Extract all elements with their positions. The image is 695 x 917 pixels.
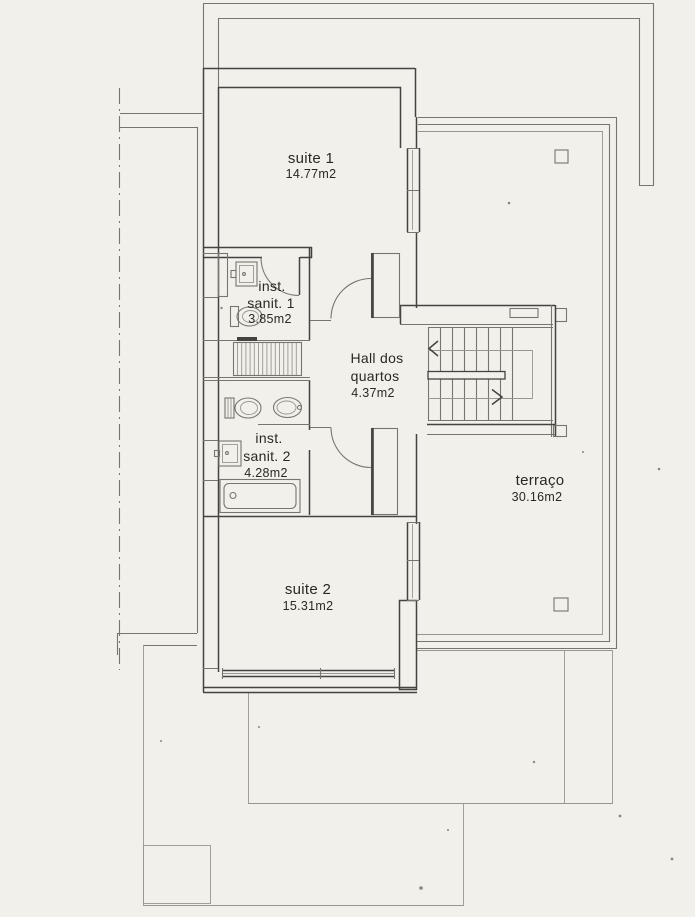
sanit1-label-line1: inst. [258, 279, 285, 293]
bidet-icon [225, 398, 261, 418]
staircase [428, 327, 553, 421]
stair-handrail [428, 372, 505, 380]
suite2-door [310, 428, 371, 468]
sanit2-label-line1: inst. [255, 431, 282, 445]
hall-label-area: 4.37m2 [351, 387, 395, 400]
floor-plan-drawing [0, 0, 695, 917]
suite2-label-area: 15.31m2 [283, 600, 334, 613]
suite1-label-area: 14.77m2 [286, 168, 337, 181]
suite2-bottom-windows [222, 668, 395, 679]
roof-outline [204, 4, 654, 186]
suite2-window [407, 522, 420, 601]
duct [219, 254, 228, 297]
suite2-label-name: suite 2 [285, 582, 331, 597]
stair-up-arrow [429, 341, 438, 356]
sink-icon [231, 262, 257, 286]
sink-icon [215, 441, 242, 466]
ground-floor-outline [144, 645, 613, 906]
wall-niche [510, 309, 538, 318]
bathtub-icon [220, 480, 300, 513]
sanit1-label-line2: sanit. 1 [247, 296, 295, 310]
terraco-label-area: 30.16m2 [512, 491, 563, 504]
suite1-door [310, 279, 371, 321]
suite1-window [407, 148, 420, 233]
suite1-label-name: suite 1 [288, 151, 334, 166]
left-wing-outline [117, 114, 202, 656]
hall-label-line1: Hall dos [351, 351, 404, 365]
shower-icon [234, 337, 302, 376]
sanit2-label-area: 4.28m2 [244, 467, 288, 480]
toilet-icon [274, 398, 302, 418]
sanit2-label-line2: sanit. 2 [243, 449, 291, 463]
terraco-label-name: terraço [516, 473, 565, 488]
hall-label-line2: quartos [351, 369, 400, 383]
sanit1-label-area: 3.85m2 [248, 313, 292, 326]
floor-plan: suite 1 14.77m2 inst. sanit. 1 3.85m2 Ha… [0, 0, 695, 917]
terrace-railing [417, 118, 617, 649]
